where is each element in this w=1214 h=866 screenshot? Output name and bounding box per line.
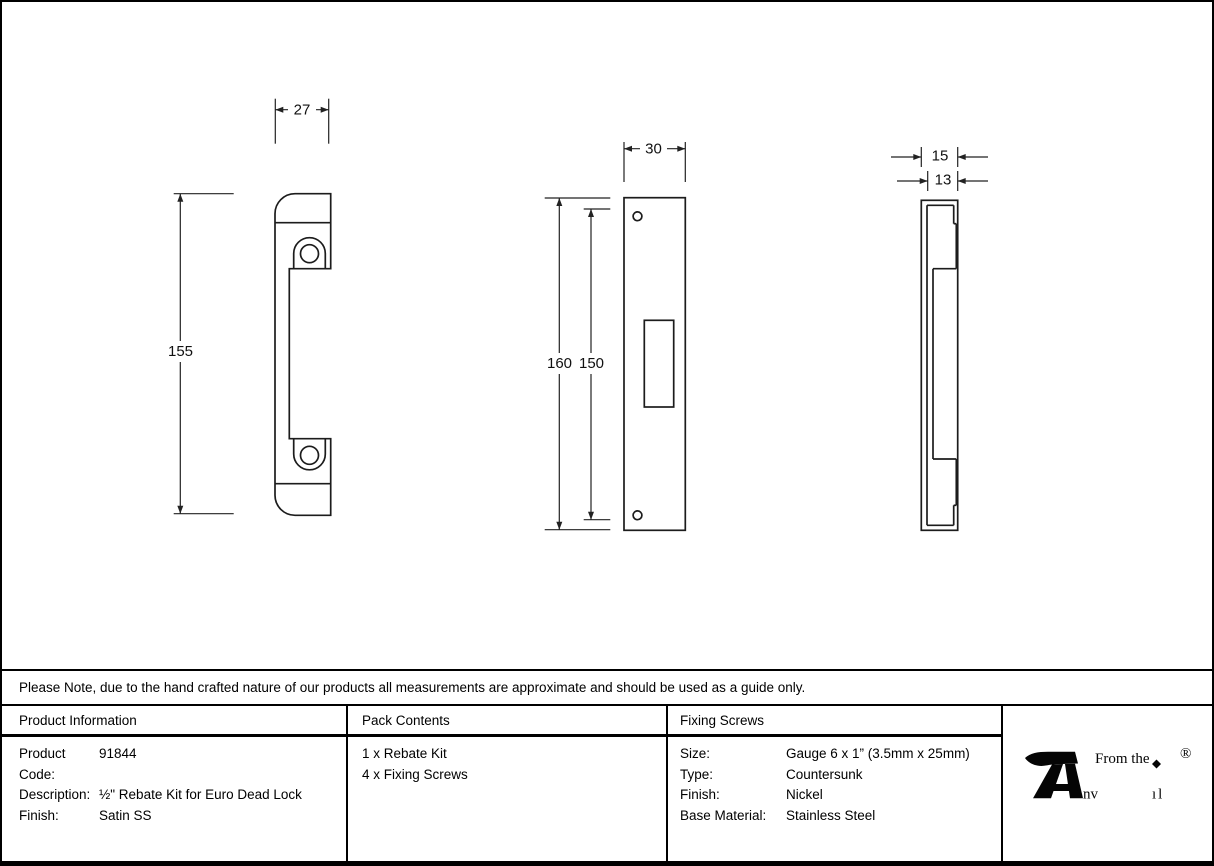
finish-value: Satin SS <box>99 806 152 827</box>
part-outline <box>275 194 331 516</box>
pack-contents-header: Pack Contents <box>348 706 666 737</box>
info-table: Product Information Product Code: 91844 … <box>2 706 1212 861</box>
anvil-logo-graphic: nv ıl From the ® <box>1025 748 1195 806</box>
spec-sheet-page: 27 155 30 <box>0 0 1214 866</box>
fixing-screws-column: Fixing Screws Size: Gauge 6 x 1” (3.5mm … <box>668 706 1003 861</box>
arrowhead-right-icon <box>920 178 928 184</box>
drawing-edge-view: 15 13 <box>882 132 1002 542</box>
diamond-dot-icon <box>1152 760 1161 769</box>
from-the-anvil-logo: nv ıl From the ® <box>1025 748 1195 806</box>
table-row: Finish: Nickel <box>668 785 1001 806</box>
brand-text-il: ıl <box>1152 786 1164 802</box>
lock-keep-slot <box>644 320 673 407</box>
arrowhead-right-icon <box>913 154 921 160</box>
edge-outline <box>921 200 957 530</box>
dim-label-15: 15 <box>932 147 949 164</box>
table-row: Description: ½" Rebate Kit for Euro Dead… <box>2 785 346 806</box>
product-information-header: Product Information <box>2 706 346 737</box>
screw-hole-bottom <box>301 446 319 464</box>
arrowhead-right-icon <box>321 107 329 113</box>
measurement-note-row: Please Note, due to the hand crafted nat… <box>2 669 1212 706</box>
fixing-screws-header-label: Fixing Screws <box>680 713 764 728</box>
arrowhead-up-icon <box>177 194 183 202</box>
product-code-value: 91844 <box>99 744 137 785</box>
brand-column: nv ıl From the ® <box>1003 706 1212 861</box>
dim-label-13: 13 <box>935 171 952 188</box>
description-value: ½" Rebate Kit for Euro Dead Lock <box>99 785 302 806</box>
dim-label-150: 150 <box>579 355 604 372</box>
arrowhead-left-icon <box>275 107 283 113</box>
dim-label-30: 30 <box>645 140 662 157</box>
base-material-value: Stainless Steel <box>786 806 875 827</box>
screw-hole-top <box>633 212 642 221</box>
row-label: Product Code: <box>19 744 99 785</box>
product-information-column: Product Information Product Code: 91844 … <box>2 706 348 861</box>
row-label: Description: <box>19 785 99 806</box>
faceplate-outline <box>624 198 685 531</box>
logo-prefix-text: From the <box>1095 751 1150 767</box>
dim-label-160: 160 <box>547 355 572 372</box>
arrowhead-down-icon <box>588 512 594 520</box>
screw-size-value: Gauge 6 x 1” (3.5mm x 25mm) <box>786 744 970 765</box>
screw-finish-value: Nickel <box>786 785 823 806</box>
screw-type-value: Countersunk <box>786 765 863 786</box>
arrowhead-left-icon <box>624 146 632 152</box>
row-label: Size: <box>680 744 786 765</box>
drawing-side-profile-view: 27 155 <box>162 92 342 537</box>
row-label: Base Material: <box>680 806 786 827</box>
brand-text-nv: nv <box>1083 786 1099 802</box>
table-row: Base Material: Stainless Steel <box>668 806 1001 827</box>
drawing-face-view: 30 160 150 <box>542 132 707 542</box>
arrowhead-up-icon <box>588 209 594 217</box>
screw-hole-bottom <box>633 511 642 520</box>
anvil-icon <box>1025 752 1083 799</box>
screw-tab-top <box>294 238 326 269</box>
arrowhead-right-icon <box>677 146 685 152</box>
list-item: 1 x Rebate Kit <box>348 744 666 765</box>
row-label: Finish: <box>680 785 786 806</box>
table-row: Type: Countersunk <box>668 765 1001 786</box>
fixing-screws-header: Fixing Screws <box>668 706 1001 737</box>
row-label: Finish: <box>19 806 99 827</box>
arrowhead-left-icon <box>958 178 966 184</box>
arrowhead-down-icon <box>177 506 183 514</box>
dim-label-27: 27 <box>294 101 311 118</box>
arrowhead-down-icon <box>556 522 562 530</box>
table-row: Size: Gauge 6 x 1” (3.5mm x 25mm) <box>668 744 1001 765</box>
arrowhead-left-icon <box>958 154 966 160</box>
pack-contents-column: Pack Contents 1 x Rebate Kit 4 x Fixing … <box>348 706 668 861</box>
pack-contents-header-label: Pack Contents <box>362 713 450 728</box>
measurement-note-text: Please Note, due to the hand crafted nat… <box>19 680 805 695</box>
product-information-header-label: Product Information <box>19 713 137 728</box>
table-row: Finish: Satin SS <box>2 806 346 827</box>
dim-label-155: 155 <box>168 343 193 360</box>
registered-mark: ® <box>1180 746 1191 762</box>
screw-hole-top <box>301 245 319 263</box>
arrowhead-up-icon <box>556 198 562 206</box>
row-label: Type: <box>680 765 786 786</box>
table-row: Product Code: 91844 <box>2 744 346 785</box>
list-item: 4 x Fixing Screws <box>348 765 666 786</box>
